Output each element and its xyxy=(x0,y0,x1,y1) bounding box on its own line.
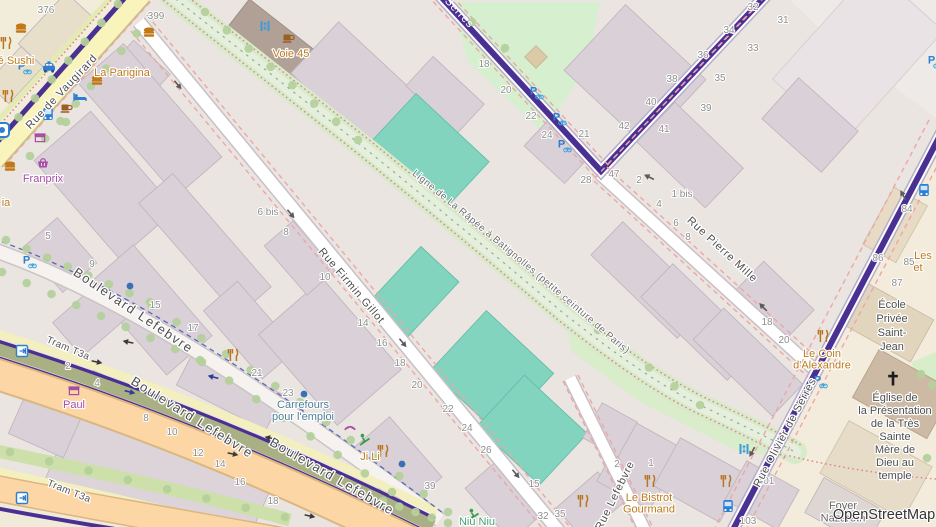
house-number: 18 xyxy=(394,358,406,369)
tree xyxy=(346,436,355,445)
house-number: 22 xyxy=(525,111,537,122)
bus-icon xyxy=(723,500,733,512)
attribution-link[interactable]: OpenStreetMap xyxy=(833,507,935,523)
house-number: 32 xyxy=(537,511,549,522)
house-number: 15 xyxy=(149,300,161,311)
poi-label: Carrefourspour l'emploi xyxy=(272,399,334,423)
house-number: 9 xyxy=(89,259,95,270)
tree xyxy=(201,8,210,17)
tree xyxy=(333,451,342,460)
house-number: 8 xyxy=(143,413,149,424)
house-number: 47 xyxy=(608,169,620,180)
tree xyxy=(121,323,130,332)
poi-label: Niu Niu xyxy=(459,516,495,527)
house-number: 12 xyxy=(192,448,204,459)
house-number: 23 xyxy=(282,388,294,399)
tree xyxy=(306,432,315,441)
tree xyxy=(223,26,232,35)
tree xyxy=(361,469,370,478)
exit-icon xyxy=(17,493,28,504)
tree xyxy=(411,508,420,517)
tree xyxy=(22,279,31,288)
house-number: 17 xyxy=(187,323,199,334)
tree xyxy=(427,513,436,522)
house-number: 42 xyxy=(618,121,630,132)
house-number: 1 xyxy=(648,458,654,469)
house-number: 2 xyxy=(614,459,620,470)
house-number: 2 xyxy=(65,361,71,372)
house-number: 21 xyxy=(251,368,263,379)
house-number: 86 xyxy=(872,253,884,264)
house-number: 41 xyxy=(658,124,670,135)
house-number: 32 xyxy=(747,2,759,13)
house-number: 40 xyxy=(645,97,657,108)
house-number: 6 bis xyxy=(257,207,278,218)
house-number: 16 xyxy=(376,338,388,349)
tree xyxy=(501,44,510,53)
tree xyxy=(72,301,81,310)
dot-icon xyxy=(301,391,308,398)
tree xyxy=(271,382,280,391)
tree xyxy=(84,466,93,475)
tree xyxy=(132,29,141,38)
tree xyxy=(62,118,71,127)
tree xyxy=(6,448,15,457)
poi-label: La Parigina xyxy=(94,67,151,79)
poi-label: Paul xyxy=(63,399,85,411)
house-number: 14 xyxy=(214,459,226,470)
house-number: 35 xyxy=(714,73,726,84)
tree xyxy=(670,382,679,391)
tree xyxy=(354,136,363,145)
tree xyxy=(288,81,297,90)
burger-icon xyxy=(144,27,154,36)
poi-label: ia xyxy=(2,197,11,209)
map-viewport[interactable]: PPPPPPP 3763991820222421284721 bis424038… xyxy=(0,0,936,527)
bus-icon xyxy=(919,184,929,196)
gate-icon xyxy=(740,444,749,454)
house-number: 16 xyxy=(234,477,246,488)
burger-icon xyxy=(16,23,26,32)
tree xyxy=(124,476,133,485)
house-number: 18 xyxy=(761,317,773,328)
tree xyxy=(388,488,397,497)
house-number: 28 xyxy=(580,175,592,186)
house-number: 6 xyxy=(673,218,679,229)
tree xyxy=(266,63,275,72)
tree xyxy=(281,513,290,522)
house-number: 10 xyxy=(166,427,178,438)
tree xyxy=(198,358,207,367)
tree xyxy=(332,117,341,126)
burger-icon xyxy=(5,161,15,170)
tree xyxy=(117,47,126,56)
house-number: 8 xyxy=(283,227,289,238)
house-number: 21 xyxy=(578,129,590,140)
poi-label: Voie 45 xyxy=(273,48,310,60)
map-canvas[interactable]: PPPPPPP 3763991820222421284721 bis424038… xyxy=(0,0,936,527)
tree xyxy=(22,245,31,254)
house-number: 26 xyxy=(480,445,492,456)
tree xyxy=(202,494,211,503)
tree xyxy=(225,376,234,385)
house-number: 18 xyxy=(478,59,490,70)
tree xyxy=(395,472,404,481)
dot-icon xyxy=(399,461,406,468)
tree xyxy=(197,334,206,343)
dot-icon xyxy=(127,283,134,290)
tree xyxy=(696,401,705,410)
tree xyxy=(47,290,56,299)
house-number: 31 xyxy=(777,15,789,26)
exit-icon xyxy=(17,346,28,357)
house-number: 1 bis xyxy=(671,189,692,200)
house-number: 24 xyxy=(461,423,473,434)
tree xyxy=(444,519,453,527)
tree xyxy=(47,75,56,84)
poi-label: Le BistrotGourmand xyxy=(623,492,675,516)
house-number: 399 xyxy=(148,11,165,22)
tree xyxy=(172,318,181,327)
tree xyxy=(43,253,52,262)
poi-label: et xyxy=(913,262,922,274)
tree xyxy=(2,236,11,245)
tree xyxy=(71,99,80,108)
house-number: 4 xyxy=(94,378,100,389)
tree xyxy=(310,99,319,108)
tree xyxy=(81,37,90,46)
gate-icon xyxy=(261,21,270,31)
tree xyxy=(26,152,35,161)
tree xyxy=(923,454,932,463)
house-number: 87 xyxy=(891,278,903,289)
house-number: 5 xyxy=(45,231,51,242)
house-number: 14 xyxy=(357,318,369,329)
house-number: 36 xyxy=(697,50,709,61)
poi-label: Ji Li xyxy=(360,451,380,463)
tree xyxy=(928,381,936,390)
house-number: 10 xyxy=(319,272,331,283)
tree xyxy=(917,370,926,379)
tree xyxy=(97,312,106,321)
tree xyxy=(444,508,453,517)
tree xyxy=(45,457,54,466)
tramlogo-icon xyxy=(0,123,9,137)
house-number: 33 xyxy=(747,43,759,54)
house-number: 8 xyxy=(685,232,691,243)
house-number: 38 xyxy=(666,74,678,85)
house-number: 35 xyxy=(554,509,566,520)
tree xyxy=(114,0,123,8)
house-number: 20 xyxy=(778,335,790,346)
house-number: 34 xyxy=(723,25,735,36)
tree xyxy=(252,395,261,404)
house-number: 84 xyxy=(901,204,913,215)
tree xyxy=(14,113,23,122)
house-number: 2 xyxy=(636,175,642,186)
tree xyxy=(97,19,106,28)
bikep-icon: P xyxy=(928,55,936,68)
house-number: 24 xyxy=(541,130,553,141)
house-number: 18 xyxy=(267,496,279,507)
house-number: 4 xyxy=(656,199,662,210)
house-number: 22 xyxy=(442,404,454,415)
tree xyxy=(163,485,172,494)
house-number: 15 xyxy=(528,479,540,490)
tree xyxy=(64,56,73,65)
house-number: 39 xyxy=(700,103,712,114)
house-number: 39 xyxy=(424,481,436,492)
poi-label: Franprix xyxy=(23,173,64,185)
tree xyxy=(31,94,40,103)
tree xyxy=(244,44,253,53)
house-number: 103 xyxy=(740,516,757,527)
poi-label: Les xyxy=(914,250,932,262)
tree xyxy=(241,503,250,512)
house-number: 20 xyxy=(500,85,512,96)
house-number: 20 xyxy=(411,380,423,391)
house-number: 376 xyxy=(38,5,55,16)
tree xyxy=(645,363,654,372)
poi-label: é Sushi xyxy=(0,55,34,67)
tree xyxy=(146,334,155,343)
tree xyxy=(63,262,72,271)
